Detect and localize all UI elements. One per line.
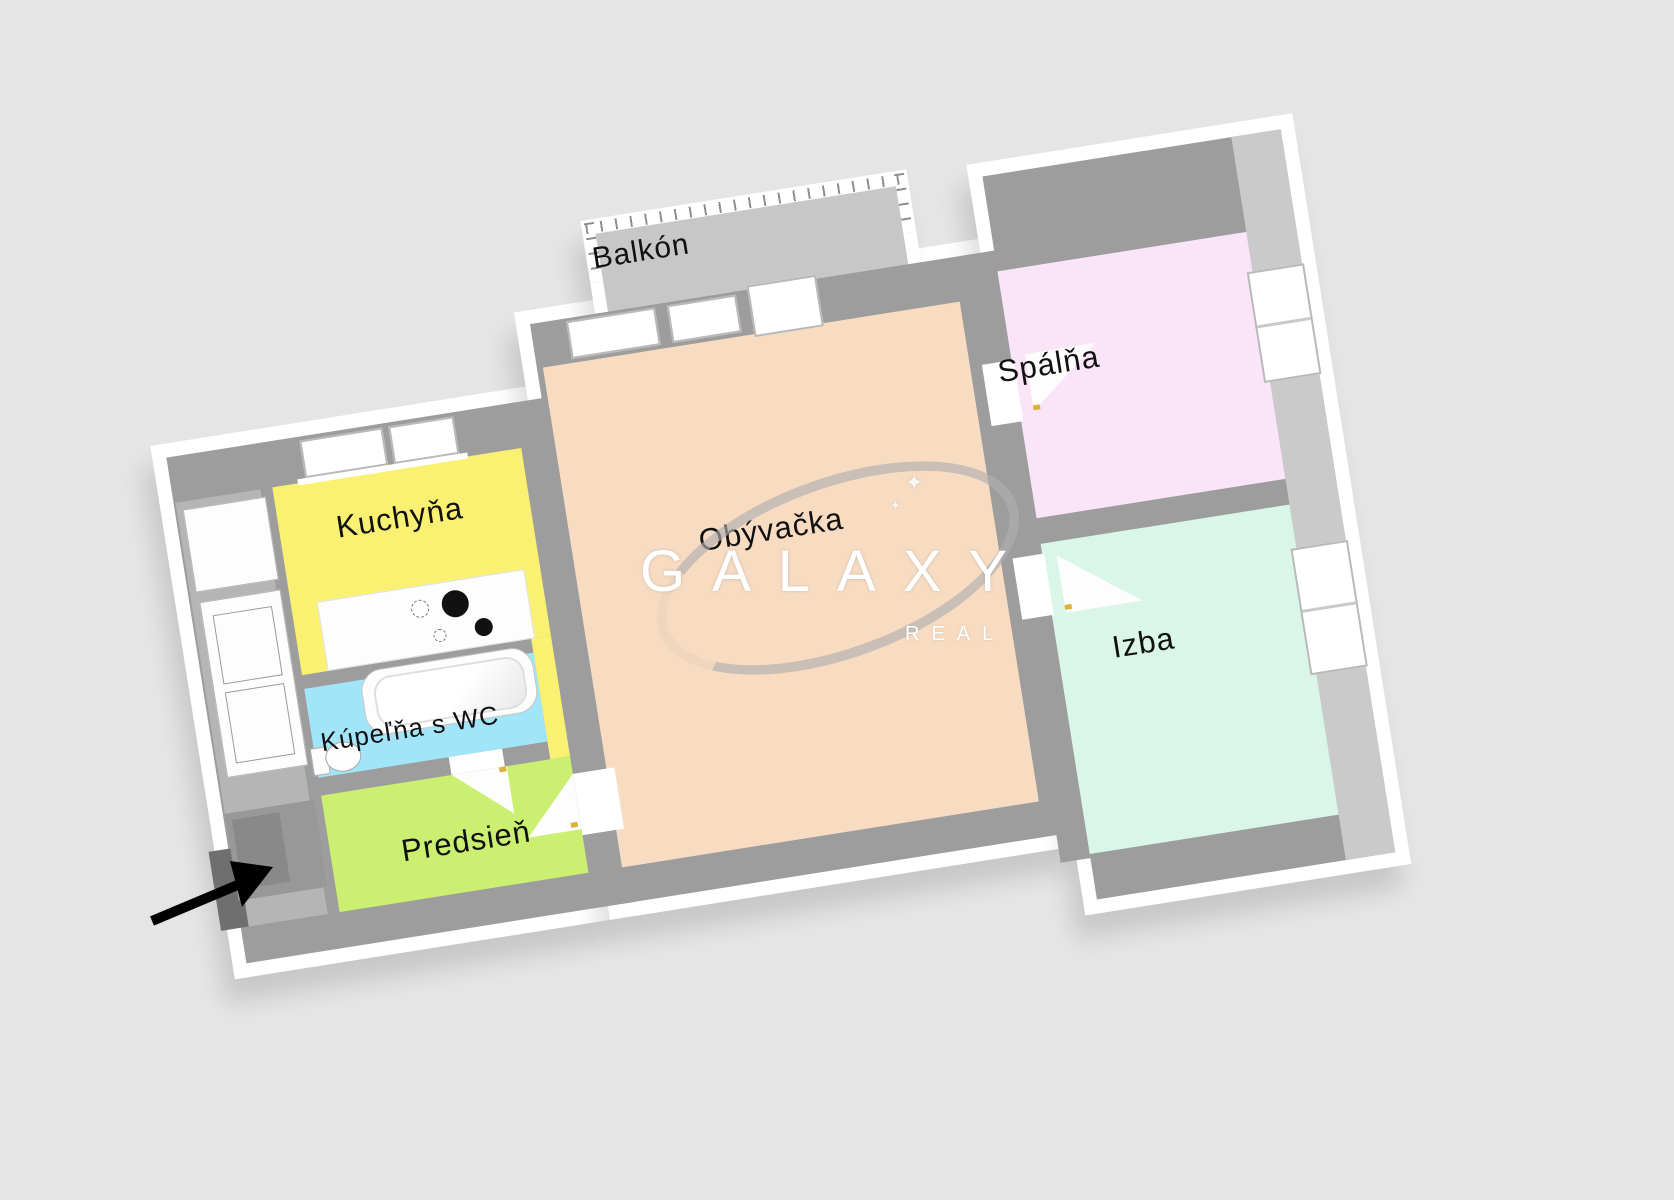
door-hinge — [1064, 604, 1072, 610]
room-obyvacka — [543, 302, 1039, 868]
entrance-arrow — [140, 845, 320, 955]
floor-plan-scene: Balkón Kuchyňa Obývačka Spálňa Izba Kúpe… — [0, 0, 1674, 1200]
floor-plan: Balkón Kuchyňa Obývačka Spálňa Izba Kúpe… — [127, 113, 1433, 1187]
balcony-door — [747, 275, 824, 337]
door-hinge — [499, 766, 507, 772]
cabinet — [183, 497, 279, 593]
door-hinge — [1033, 404, 1041, 410]
